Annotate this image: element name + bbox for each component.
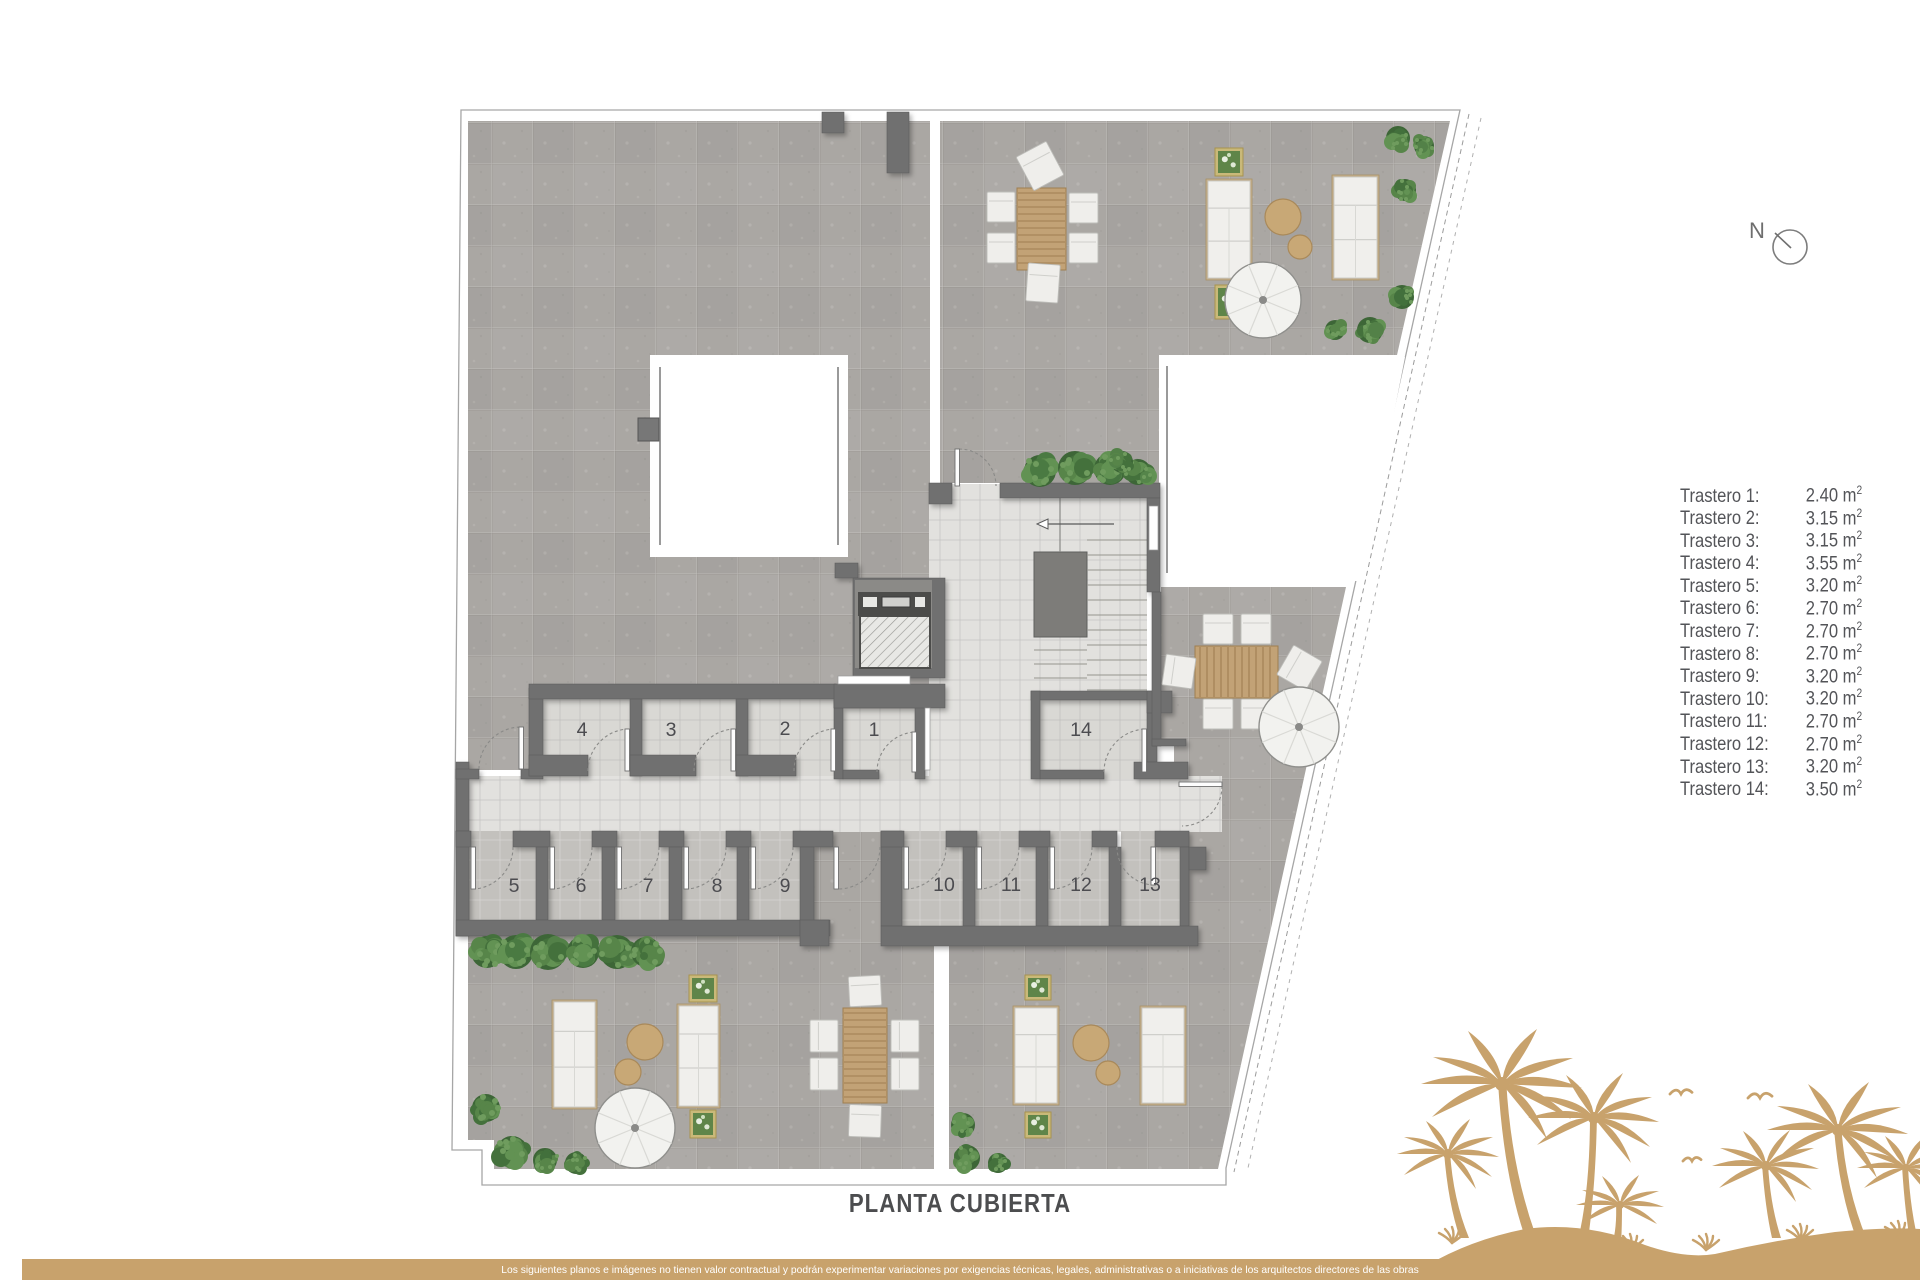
svg-text:4: 4 xyxy=(577,719,588,741)
svg-text:10: 10 xyxy=(933,874,955,896)
svg-text:3: 3 xyxy=(666,719,677,741)
svg-text:13: 13 xyxy=(1139,874,1161,896)
svg-text:14: 14 xyxy=(1070,719,1092,741)
svg-text:8: 8 xyxy=(712,875,723,897)
svg-text:12: 12 xyxy=(1070,874,1092,896)
svg-text:11: 11 xyxy=(1001,874,1021,896)
svg-text:7: 7 xyxy=(643,875,654,897)
svg-text:2: 2 xyxy=(780,718,791,740)
svg-text:1: 1 xyxy=(869,719,880,741)
svg-text:N: N xyxy=(1749,218,1765,243)
svg-text:9: 9 xyxy=(780,875,791,897)
svg-text:5: 5 xyxy=(509,875,520,897)
svg-text:6: 6 xyxy=(576,875,587,897)
